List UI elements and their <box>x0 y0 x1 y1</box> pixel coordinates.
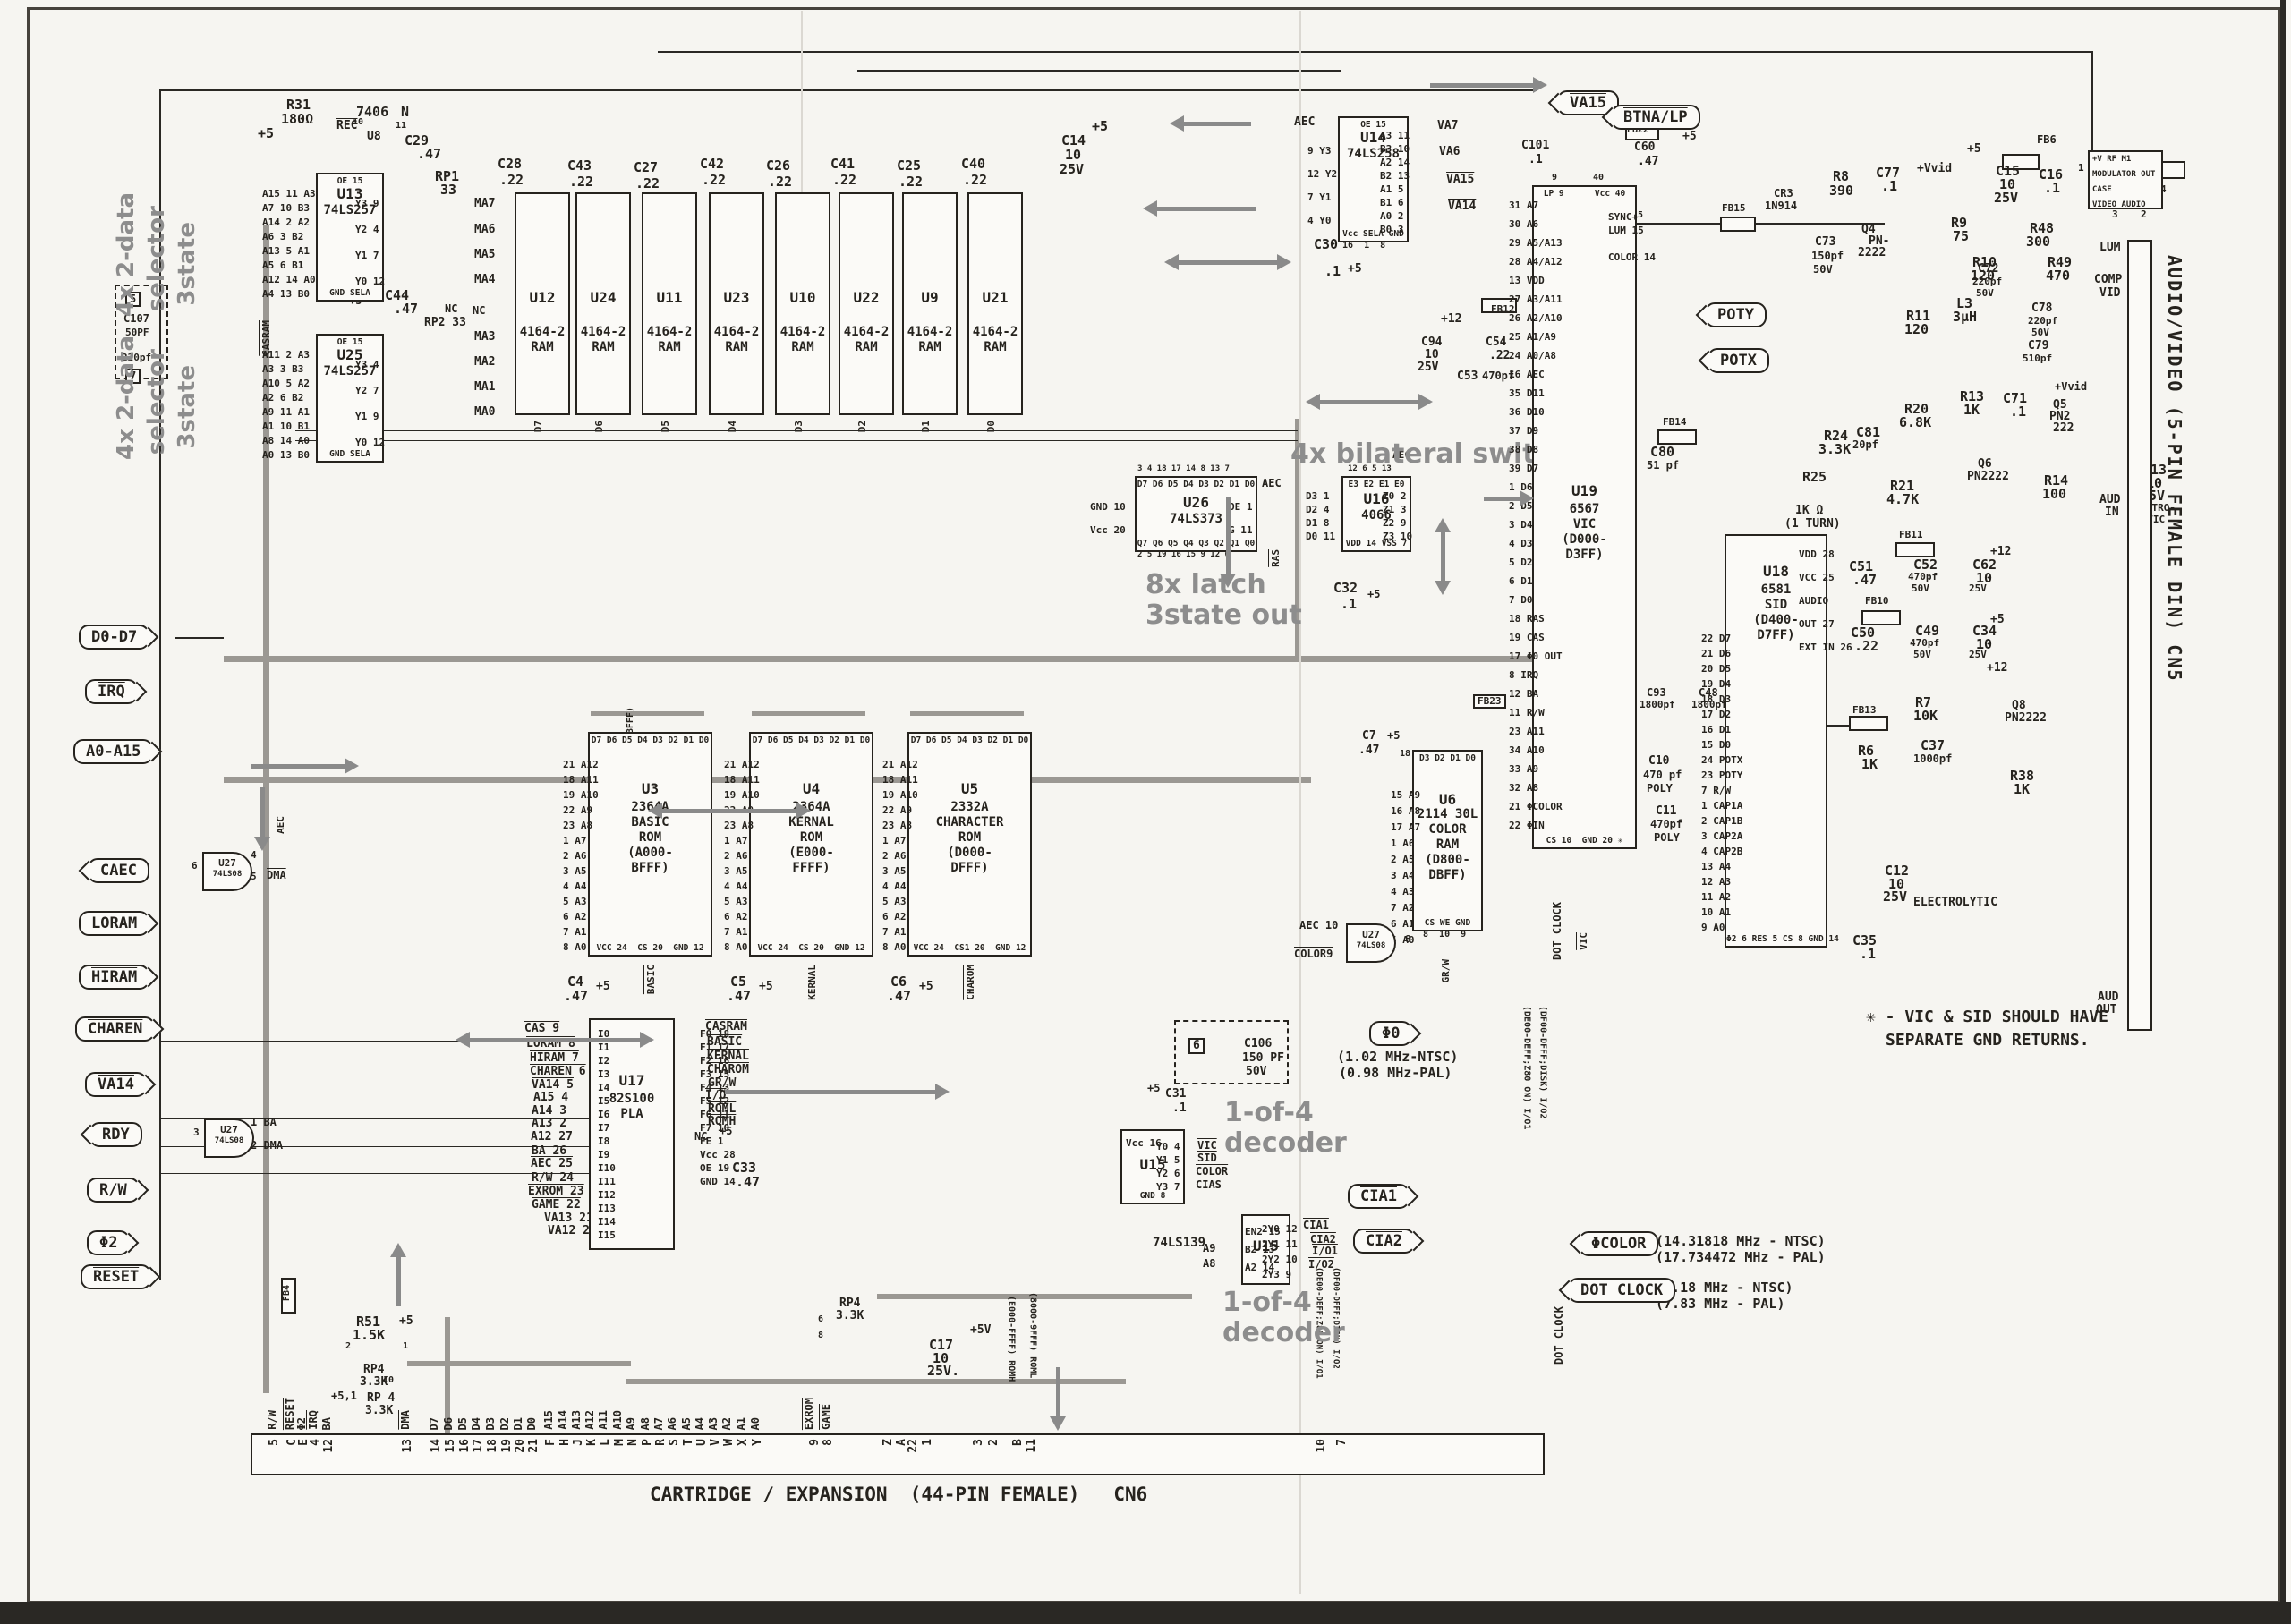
gate-u27b: U2774LS08 <box>204 1118 254 1158</box>
cn6-signal-label: A13 <box>571 1410 583 1430</box>
gate-u27c: U2774LS08 <box>1346 923 1396 963</box>
schematic-label: 300 <box>2026 235 2050 250</box>
cn6-pin: K <box>586 1439 599 1446</box>
schematic-label: C101 <box>1521 140 1549 152</box>
schematic-label: 10 <box>383 1376 394 1386</box>
schematic-label: A14 3 <box>532 1105 566 1118</box>
schematic-label: 180Ω <box>281 113 313 127</box>
schematic-label: decoder <box>1222 1319 1345 1348</box>
conn-cn5 <box>2127 240 2152 1031</box>
schematic-label: Q8 <box>2012 700 2026 712</box>
signal-flag-label: ΦCOLOR <box>1591 1235 1646 1253</box>
signal-flag-d0-d7: D0-D7 <box>79 625 149 650</box>
icrp: 2Y0 12 2Y1 11 2Y2 10 2Y3 9 <box>1262 1221 1369 1282</box>
schematic-label: C53 <box>1457 370 1478 383</box>
schematic-label: C27 <box>634 161 658 175</box>
schematic-label: 3.3K <box>365 1405 393 1417</box>
schematic-label: 4x 2-data <box>115 192 140 317</box>
signal-flag-reset: RESET <box>81 1264 151 1289</box>
schematic-label: C42 <box>700 157 724 172</box>
schematic-label: C28 <box>498 157 522 172</box>
arrow-head <box>640 1032 662 1048</box>
bus-arrow <box>1484 497 1524 501</box>
icrp: Y0 4 Y1 5 Y2 6 Y3 7 <box>1156 1140 1264 1194</box>
schematic-label: C30 <box>1314 238 1338 252</box>
arrow-head <box>254 837 270 859</box>
schematic-label: Q6 <box>1978 458 1992 471</box>
schematic-label: 510pf <box>2023 353 2052 364</box>
cn6-pin: W <box>723 1439 736 1446</box>
cn6-signal-label: A5 <box>681 1417 693 1430</box>
schematic-label: C93 <box>1647 687 1666 699</box>
cn6-signal-label: A12 <box>584 1410 596 1430</box>
icsub: RAM <box>969 340 1021 354</box>
schematic-label: D3 <box>794 421 805 432</box>
signal-flag-label: Φ0 <box>1382 1025 1400 1042</box>
icref: U12 <box>516 289 568 306</box>
schematic-label: .1 <box>1860 948 1876 962</box>
schematic-label: FB23 <box>1473 694 1506 709</box>
signal-flag-loram: LORAM <box>79 911 149 936</box>
wire <box>161 1093 589 1093</box>
wire <box>161 1173 589 1174</box>
arrow-head <box>1298 394 1320 410</box>
cn6-pin: R <box>655 1439 668 1446</box>
schematic-label: C11 <box>1656 805 1676 818</box>
schematic-label: FB6 <box>2037 134 2057 146</box>
arrow-head <box>796 803 819 819</box>
arrow-head <box>1162 115 1184 132</box>
schematic-label: +5 <box>399 1315 413 1328</box>
iclp: 21 A12 18 A11 19 A10 22 A9 23 A8 1 A7 2 … <box>724 757 849 955</box>
wire <box>1299 11 1301 1594</box>
schematic-label: 50V <box>1913 650 1931 660</box>
bus-arrow <box>1316 400 1423 404</box>
cn6-pin: 21 <box>528 1439 541 1453</box>
wire <box>591 711 704 716</box>
schematic-label: .1 <box>1341 598 1357 612</box>
bus-arrow <box>1153 207 1256 211</box>
connector-cn6-title: CARTRIDGE / EXPANSION (44-PIN FEMALE) CN… <box>650 1484 1147 1505</box>
ic-u10: U104164-2RAM <box>775 192 830 415</box>
schematic-label: .22 <box>1489 350 1510 362</box>
icsub: RAM <box>516 340 568 354</box>
iclp: 21 A12 18 A11 19 A10 22 A9 23 A8 1 A7 2 … <box>563 757 688 955</box>
ic-u4: D7 D6 D5 D4 D3 D2 D1 D0VCC 24 CS 20 GND … <box>749 732 873 957</box>
schematic-label: 3 <box>193 1127 200 1138</box>
cn6-signal-label: EXROM <box>804 1398 815 1430</box>
cn6-pin: 3 <box>973 1439 985 1446</box>
schematic-label: OUT <box>2096 1004 2116 1016</box>
cn6-pin: 13 <box>402 1439 414 1453</box>
cn6-pin: 4 <box>310 1439 322 1446</box>
cn6-signal-label: A9 <box>626 1417 637 1430</box>
wire <box>2280 0 2286 1602</box>
schematic-label: 10 <box>353 118 363 128</box>
icref: U27 <box>206 1124 252 1135</box>
schematic-label: (DF00-DFFF;DISK) I/O2 <box>1537 1006 1547 1118</box>
schematic-label: 220pf <box>2028 316 2057 327</box>
ictp: D7 D6 D5 D4 D3 D2 D1 D0 <box>751 735 872 745</box>
schematic-label: A9 <box>1203 1243 1215 1254</box>
schematic-label: +12 <box>1441 313 1461 326</box>
cn6-pin: 20 <box>515 1439 527 1453</box>
arrow-head <box>1418 394 1441 410</box>
cn6-pin: 14 <box>430 1439 443 1453</box>
cn6-signal-label: A3 <box>708 1417 720 1430</box>
signal-flag-label: A0-A15 <box>86 743 141 761</box>
signal-flag-label: DOT CLOCK <box>1580 1281 1663 1299</box>
icsub: 4164-2 <box>577 325 629 339</box>
cn6-signal-label: A11 <box>598 1410 609 1430</box>
schematic-label: 3state <box>175 222 200 306</box>
schematic-label: MA3 <box>474 331 495 344</box>
schematic-label: .1 <box>1324 265 1341 279</box>
schematic-label: FB15 <box>1722 203 1746 214</box>
ic-u11: U114164-2RAM <box>642 192 697 415</box>
icref: U27 <box>1348 929 1394 940</box>
cn6-pin: 2 <box>988 1439 1001 1446</box>
schematic-label: 1 <box>2078 163 2084 174</box>
schematic-label: 6 <box>1188 1038 1205 1054</box>
schematic-label: 470 <box>2046 269 2070 284</box>
cn6-pin: B <box>1012 1439 1025 1446</box>
cn6-signal-label: GAME <box>821 1404 832 1430</box>
schematic-label: 1K <box>1861 758 1878 772</box>
ic-u14: OE 15Vcc SELA GNDU1474LS2589 Y3 12 Y2 7 … <box>1338 116 1409 242</box>
arrow-head <box>390 1235 406 1257</box>
cn6-pin: P <box>642 1439 654 1446</box>
signal-flag-label: CHAREN <box>88 1020 142 1038</box>
schematic-label: (8.18 MHz - NTSC) <box>1656 1281 1793 1296</box>
bus-arrow <box>658 809 801 813</box>
schematic-label: AUD <box>2098 991 2118 1004</box>
schematic-label: FB4 <box>283 1285 293 1301</box>
schematic-label: 50V <box>2031 327 2049 338</box>
schematic-label: CHAREN 6 <box>530 1066 586 1078</box>
ictp: D7 D6 D5 D4 D3 D2 D1 D0 <box>590 735 711 745</box>
cn6-signal-label: D5 <box>457 1417 469 1430</box>
bus-arrow <box>1180 122 1251 126</box>
schematic-label: VID <box>2099 287 2120 300</box>
schematic-label: 50V <box>1912 583 1929 594</box>
icsub: CASE <box>2090 185 2164 194</box>
cn6-pin: 8 <box>822 1439 835 1446</box>
schematic-label: C43 <box>567 159 592 174</box>
cn6-pin: 16 <box>459 1439 472 1453</box>
schematic-label: .1 <box>2010 405 2026 420</box>
ic-u9: U94164-2RAM <box>902 192 958 415</box>
schematic-label: MA6 <box>474 224 495 236</box>
schematic-label: BASIC <box>646 965 657 994</box>
cn6-pin: N <box>627 1439 640 1446</box>
schematic-label: .47 <box>727 990 751 1004</box>
schematic-label: 1-of-4 <box>1222 1288 1312 1317</box>
signal-flag-hiram: HIRAM <box>79 965 149 990</box>
cn6-signal-label: A10 <box>612 1410 624 1430</box>
icsub: RAM <box>904 340 956 354</box>
schematic-label: COLOR9 <box>1294 948 1333 960</box>
wire <box>2091 51 2093 151</box>
schematic-label: 40 <box>1593 174 1604 183</box>
schematic-label: 8 <box>818 1331 823 1341</box>
schematic-label: 2 5 19 16 15 9 12 6 <box>1137 551 1230 560</box>
schematic-label: +5 <box>258 127 274 141</box>
signal-flag-charen: CHAREN <box>75 1016 155 1042</box>
signal-flag-label: VA15 <box>1570 94 1606 112</box>
wire <box>0 1602 2291 1624</box>
schematic-label: 470 pf <box>1643 769 1682 781</box>
cn6-signal-label: A4 <box>694 1417 706 1430</box>
icbp: CS 10 GND 20 ✳ <box>1534 836 1635 846</box>
signal-flag-label: Φ2 <box>99 1234 117 1252</box>
schematic-label: .1 <box>1529 154 1543 166</box>
schematic-label: 4x 2-data <box>115 336 140 460</box>
schematic-label: +5V <box>970 1324 991 1337</box>
schematic-label: +5 <box>1147 1083 1160 1094</box>
icsub: MODULATOR OUT <box>2090 170 2164 179</box>
schematic-label: 390 <box>1829 184 1853 199</box>
schematic-label: MA4 <box>474 274 495 286</box>
schematic-label: C41 <box>830 157 855 172</box>
cn6-pin: J <box>573 1439 585 1446</box>
cn6-signal-label: D6 <box>443 1417 455 1430</box>
schematic-label: .1 <box>2044 182 2060 196</box>
schematic-label: 3state out <box>1145 601 1302 630</box>
schematic-label: +5 <box>919 981 933 993</box>
cn6-pin: Z <box>882 1439 895 1446</box>
schematic-label: .22 <box>899 175 923 190</box>
schematic-label: 3.3K <box>1818 443 1851 457</box>
iclp: 15 A9 16 A8 17 A7 1 A6 2 A5 3 A4 4 A3 7 … <box>1391 787 1516 948</box>
signal-flag-label: CAEC <box>100 862 137 880</box>
cn6-pin: S <box>669 1439 681 1446</box>
schematic-label: RP4 <box>839 1297 860 1310</box>
schematic-label: PN2222 <box>1967 471 2009 483</box>
schematic-label: C26 <box>766 159 790 174</box>
schematic-label: 25V <box>1883 890 1907 905</box>
schematic-label: .47 <box>394 302 418 317</box>
schematic-label: 74LS139 <box>1153 1237 1205 1250</box>
schematic-label: C32 <box>1333 582 1358 596</box>
schematic-label: MA1 <box>474 381 495 394</box>
schematic-label: COMP <box>2094 274 2122 286</box>
schematic-label: MA2 <box>474 356 495 369</box>
wire <box>910 711 1024 716</box>
ictp: D7 D6 D5 D4 D3 D2 D1 D0 <box>909 735 1030 745</box>
schematic-label: 3state <box>175 365 200 449</box>
ic-u15: GND 8U15Vcc 16Y0 4 Y1 5 Y2 6 Y3 7 <box>1120 1129 1185 1204</box>
signal-flag-label: HIRAM <box>91 968 137 986</box>
icref: U23 <box>711 289 762 306</box>
schematic-label: RP4 <box>363 1364 384 1376</box>
wire <box>159 89 1537 91</box>
schematic-label: +5 <box>1682 131 1697 143</box>
bus-arrow <box>725 1090 940 1094</box>
schematic-label: 120 <box>1904 323 1929 337</box>
schematic-label: 2 <box>2141 209 2147 220</box>
schematic-label: 3 <box>2112 209 2118 220</box>
schematic-label: D1 <box>921 421 932 432</box>
schematic-label: +5,1 <box>331 1390 357 1402</box>
cn6-pin: Y <box>752 1439 764 1446</box>
schematic-label: 25V <box>1060 163 1084 177</box>
schematic-label: 1K Ω <box>1795 505 1823 517</box>
schematic-label: D0 <box>986 421 997 432</box>
cn6-pin: 12 <box>323 1439 336 1453</box>
schematic-label: LUM <box>2099 242 2120 254</box>
icrp: Y3 4 Y2 7 Y1 9 Y0 12 <box>355 352 463 455</box>
arrow-head <box>1156 254 1179 270</box>
cn6-pin: 7 <box>1336 1439 1349 1446</box>
schematic-label: CAS 9 <box>524 1023 559 1035</box>
schematic-label: 50V <box>1813 264 1833 276</box>
schematic-label: VIC <box>1579 932 1589 950</box>
signal-flag-dot-clock: DOT CLOCK <box>1568 1278 1675 1303</box>
schematic-label: C60 <box>1634 141 1655 154</box>
ic-u16: E3 E2 E1 E0VDD 14 VSS 7U164066D3 1 D2 4 … <box>1341 476 1411 552</box>
schematic-label: 470pf <box>1908 572 1938 582</box>
schematic-label: RP 4 <box>367 1392 395 1405</box>
cn6-pin: T <box>683 1439 695 1446</box>
schematic-label: AEC <box>1262 478 1282 489</box>
schematic-label: (7.83 MHz - PAL) <box>1656 1297 1785 1312</box>
schematic-label: KERNAL <box>807 965 818 1000</box>
icsub: RAM <box>577 340 629 354</box>
cn6-signal-label: D4 <box>471 1417 482 1430</box>
schematic-label: C72 <box>1978 263 1998 276</box>
schematic-label: 16 1 8 <box>1342 242 1385 251</box>
signal-flag-label: RDY <box>102 1126 130 1144</box>
schematic-label: 1800pf <box>1639 700 1675 710</box>
schematic-label: .22 <box>499 174 524 188</box>
ic-u15b: U15EN2 15 B2 13 A2 142Y0 12 2Y1 11 2Y2 1… <box>1241 1214 1290 1285</box>
icref: U10 <box>777 289 829 306</box>
schematic-label: 6 <box>818 1315 823 1325</box>
schematic-label: 470pf <box>1910 638 1939 649</box>
ictp: D3 D2 D1 D0 <box>1414 753 1481 763</box>
schematic-label: AEC 10 <box>1299 920 1338 931</box>
schematic-label: C106 <box>1244 1038 1272 1050</box>
schematic-label: A12 27 <box>531 1131 573 1144</box>
cn6-signal-label: D2 <box>499 1417 511 1430</box>
wire <box>161 1067 589 1067</box>
cn6-pin: M <box>614 1439 626 1446</box>
cn6-signal-label: RESET <box>285 1398 296 1430</box>
schematic-label: (1 TURN) <box>1784 518 1841 531</box>
icsub: 74LS08 <box>204 870 251 879</box>
schematic-label: 10K <box>1913 710 1938 724</box>
ic-u5: D7 D6 D5 D4 D3 D2 D1 D0VCC 24 CS1 20 GND… <box>907 732 1032 957</box>
ic-u24: U244164-2RAM <box>575 192 631 415</box>
schematic-label: 220pf <box>1972 276 2002 287</box>
note-gnd-returns-1: ✳ - VIC & SID SHOULD HAVE <box>1866 1008 2108 1026</box>
wire <box>224 656 1532 662</box>
bus-arrow <box>1056 1367 1060 1421</box>
icref: U24 <box>577 289 629 306</box>
schematic-label: POLY <box>1654 832 1680 844</box>
cn6-signal-label: A2 <box>721 1417 733 1430</box>
schematic-label: FB13 <box>1852 705 1877 716</box>
icsub: RAM <box>711 340 762 354</box>
cn6-signal-label: D1 <box>513 1417 524 1430</box>
schematic-label: (E000-FFFF) ROMH <box>1006 1296 1016 1382</box>
schematic-label: 25V <box>1969 650 1987 660</box>
schematic-label: 1N914 <box>1765 200 1797 212</box>
schematic-label: .22 <box>635 177 660 191</box>
schematic-label: 25V <box>1418 361 1438 374</box>
icrp: F0 18 F1 17 F2 16 F3 15 F4 13 F5 12 F6 1… <box>700 1027 807 1188</box>
cn6-pin: 1 <box>922 1439 934 1446</box>
schematic-label: POLY <box>1647 783 1673 795</box>
ic-u18: Φ2 6 RES 5 CS 8 GND 14U186581SID(D400-D7… <box>1725 534 1827 948</box>
icsub: +V RF M1 <box>2090 155 2164 164</box>
schematic-label: C80 <box>1650 446 1674 460</box>
schematic-label: 50V <box>1246 1066 1266 1078</box>
ic-u19: LP 9 Vcc 40CS 10 GND 20 ✳U196567VIC(D000… <box>1532 185 1637 849</box>
signal-flag--2: Φ2 <box>87 1230 130 1255</box>
ic-u25: OE 15GND SELAU2574LS257A11 2 A3 A3 3 B3 … <box>316 334 384 463</box>
ic-u13: OE 15GND SELAU1374LS257A15 11 A3 A7 10 B… <box>316 173 384 302</box>
note-gnd-returns-2: SEPARATE GND RETURNS. <box>1886 1031 2090 1050</box>
icsub: 4164-2 <box>840 325 892 339</box>
schematic-label: 50V <box>1976 288 1994 299</box>
schematic-label: AUD <box>2099 494 2120 506</box>
schematic-label: 9 <box>1552 174 1557 183</box>
schematic-label: +12 <box>1987 662 2007 675</box>
schematic-label: 100 <box>2042 488 2066 502</box>
cn6-signal-label: D7 <box>429 1417 440 1430</box>
cn6-pin: 19 <box>501 1439 514 1453</box>
signal-flag-label: POTX <box>1720 352 1757 370</box>
schematic-label: +5 <box>1348 263 1362 276</box>
schematic-label: AEC 25 <box>531 1158 573 1170</box>
ic-u23: U234164-2RAM <box>709 192 764 415</box>
ic-u3: D7 D6 D5 D4 D3 D2 D1 D0VCC 24 CS 20 GND … <box>588 732 712 957</box>
schematic-label: .47 <box>564 990 588 1004</box>
schematic-label: 1000pf <box>1913 753 1952 765</box>
ic-rf-modulator: +V RF M1MODULATOR OUTCASEVIDEO AUDIO <box>2088 150 2163 209</box>
schematic-label: (8000-9FFF) ROML <box>1027 1292 1037 1378</box>
signal-flag-label: CIA2 <box>1366 1232 1402 1250</box>
schematic-label: RP2 33 <box>424 317 466 329</box>
ic-u6: D3 D2 D1 D0CS WE GNDU62114 30LCOLORRAM(D… <box>1412 750 1483 931</box>
cn6-signal-label: IRQ <box>308 1410 319 1430</box>
cn6-pin: H <box>559 1439 572 1446</box>
schematic-label: .47 <box>417 148 441 162</box>
signal-flag-btna-lp: BTNA/LP <box>1611 105 1700 130</box>
signal-flag-va14: VA14 <box>85 1072 147 1097</box>
cn6-signal-label: A1 <box>736 1417 747 1430</box>
schematic-label: U8 <box>367 131 381 143</box>
cn6-pin: 18 <box>487 1439 499 1453</box>
gate-u27a: U2774LS08 <box>202 852 252 891</box>
schematic-label: 4.7K <box>1886 493 1919 507</box>
schematic-label: VA13 21 <box>544 1212 593 1225</box>
arrow-head <box>1520 490 1542 506</box>
schematic-label: C31 <box>1165 1088 1186 1101</box>
cn6-signal-label: D3 <box>485 1417 497 1430</box>
wire <box>857 70 1341 72</box>
icsub: 4164-2 <box>969 325 1021 339</box>
icsub: VIDEO AUDIO <box>2090 200 2164 209</box>
schematic-label: 3 4 18 17 14 8 13 7 <box>1137 465 1230 474</box>
arrow-head <box>1277 254 1299 270</box>
signal-flag-label: POTY <box>1717 306 1754 324</box>
schematic-label: DOT CLOCK <box>1552 902 1563 960</box>
signal-flag-label: VA14 <box>98 1076 134 1093</box>
schematic-label: .22 <box>832 174 856 188</box>
